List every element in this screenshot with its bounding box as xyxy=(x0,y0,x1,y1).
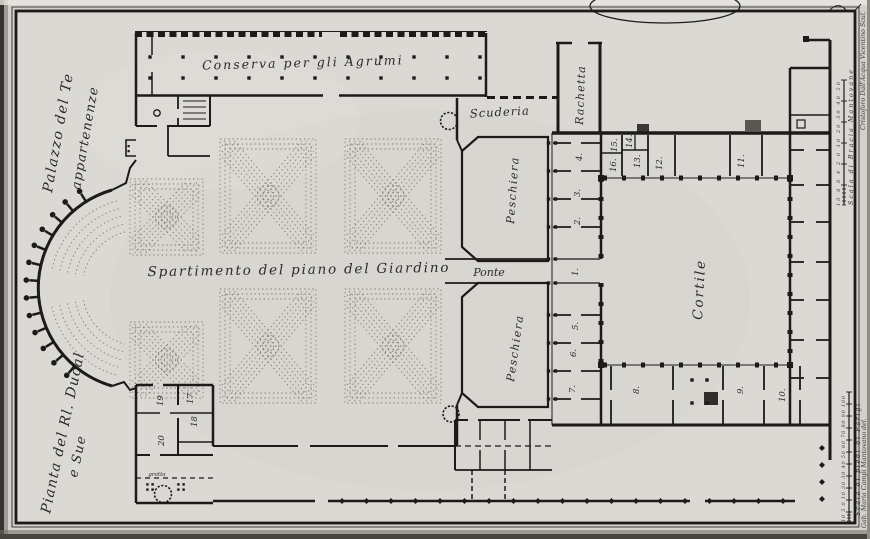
plan-drawing: Conserva per gli Agrumi Spartimento del … xyxy=(0,0,870,539)
engraver-credit: Cristoforo Dall'Acqua Vicentino Scul. xyxy=(860,11,867,130)
parigi-numbers: 10 5 0 10 20 30 40 50 60 70 80 90 100 xyxy=(841,395,847,522)
draughtsman-credit: Gab. Maria Campi Mantovano del. xyxy=(861,418,868,528)
room-14: 14. xyxy=(625,134,635,148)
room-17: 17 xyxy=(186,393,196,404)
room-1: 1. xyxy=(571,268,581,276)
room-18: 18 xyxy=(190,416,200,427)
room-7: 7. xyxy=(568,385,578,393)
room-11: 11. xyxy=(737,154,747,168)
room-5: 5. xyxy=(571,322,581,330)
room-12: 12. xyxy=(655,156,665,170)
room-20: 20 xyxy=(157,435,167,447)
room-4: 4. xyxy=(575,153,585,162)
cortile-label: Cortile xyxy=(690,258,709,320)
room-15: 15. xyxy=(610,138,620,152)
engraved-plate: Conserva per gli Agrumi Spartimento del … xyxy=(0,0,870,539)
room-3: 3. xyxy=(573,189,583,197)
room-19: 19 xyxy=(156,395,166,406)
grotta-label: grotta xyxy=(148,472,165,478)
room-2: 2. xyxy=(573,217,583,226)
ponte-label: Ponte xyxy=(472,266,505,279)
room-8: 8. xyxy=(632,386,642,394)
room-9: 9. xyxy=(736,386,746,394)
room-10: 10. xyxy=(778,388,788,402)
room-6: 6. xyxy=(569,349,579,357)
rachetta-label: Rachetta xyxy=(573,65,588,126)
room-16: 16. xyxy=(609,158,619,172)
room-13: 13. xyxy=(633,154,643,168)
